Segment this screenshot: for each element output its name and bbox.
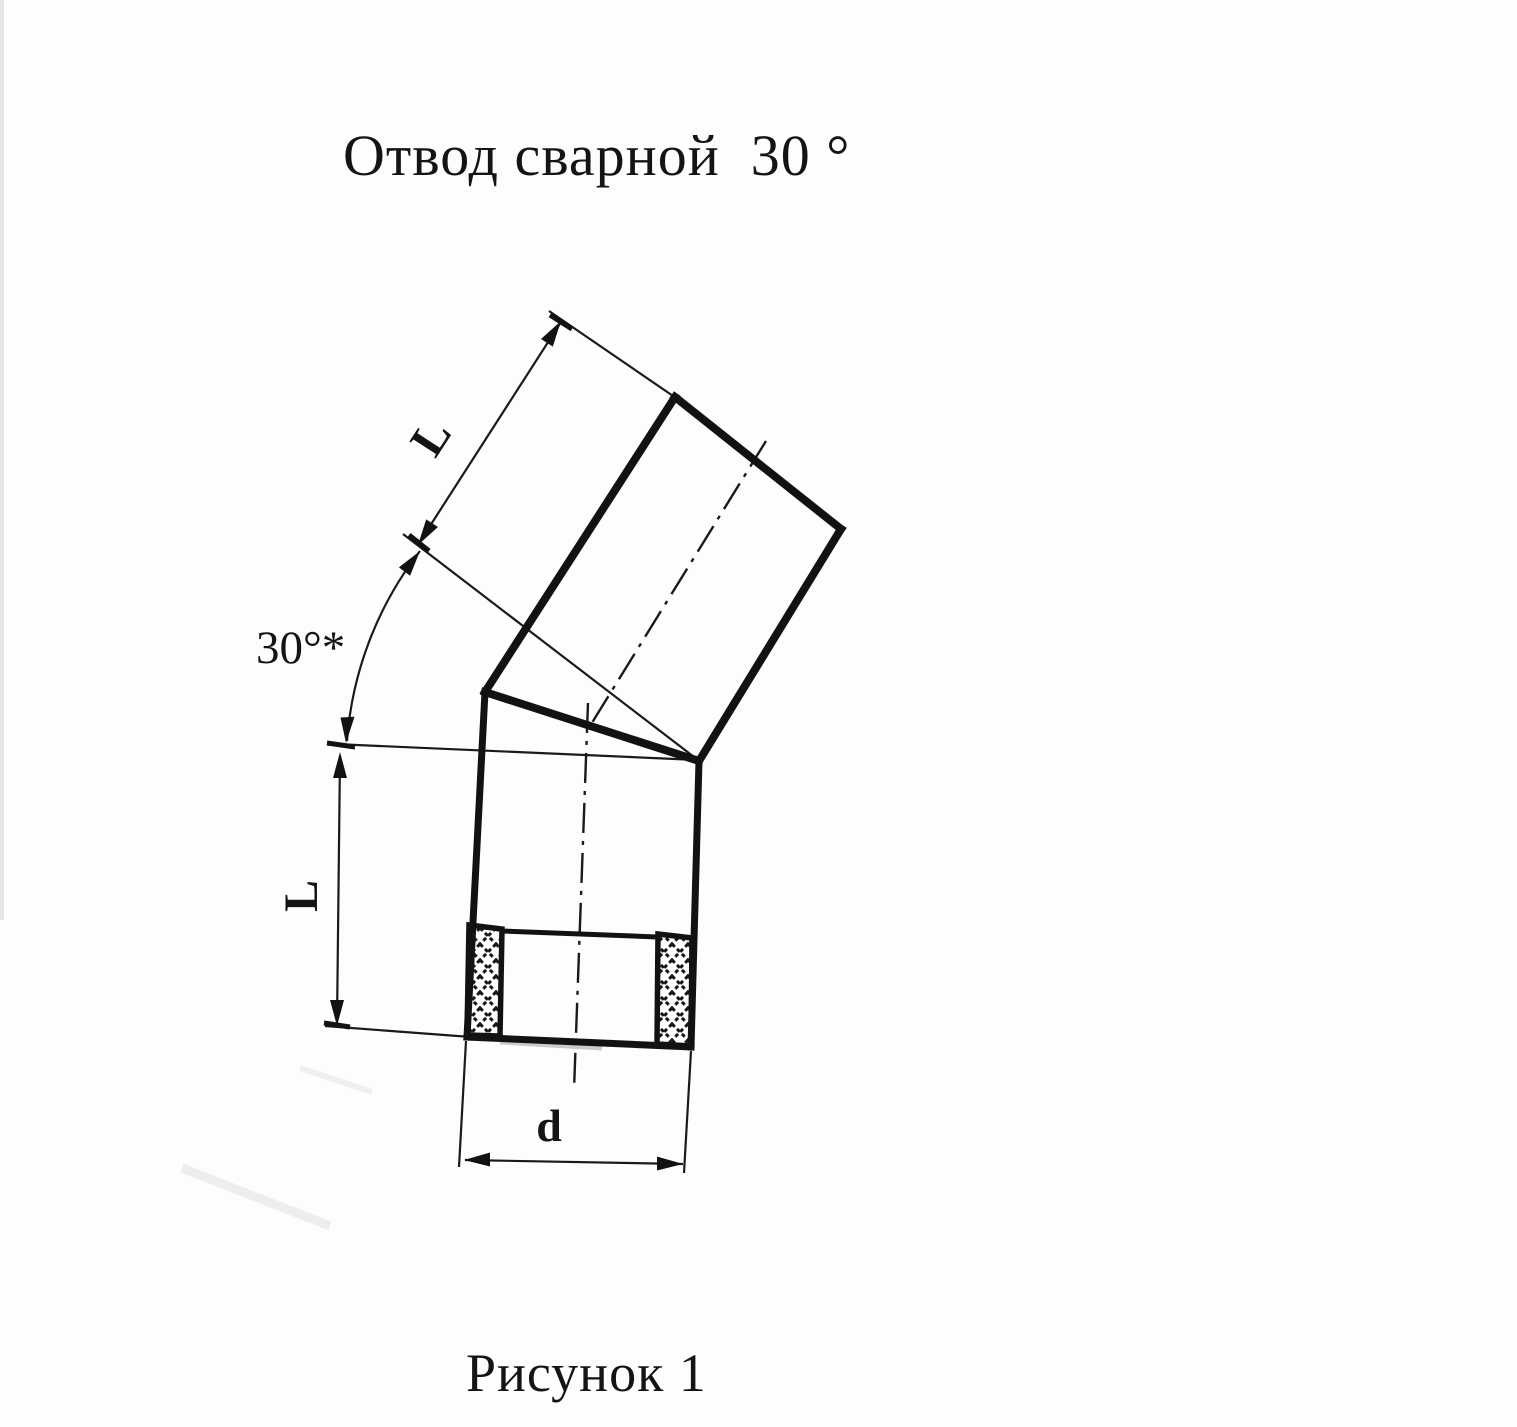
wall-hatch-left: [467, 925, 502, 1036]
arrow-arc-top: [399, 551, 420, 576]
wall-hatch-right: [657, 934, 692, 1046]
arrow-upper-L-top: [541, 321, 561, 347]
upper-segment-top-edge: [675, 397, 841, 529]
tick-upper-L-top: [550, 315, 572, 329]
centerline-lower-segment: [574, 703, 588, 1090]
extension-line-d-left: [459, 1041, 466, 1167]
figure-caption: Рисунок 1: [466, 1342, 707, 1404]
dimension-ticks: [324, 315, 572, 1027]
angle-arc: [347, 551, 420, 741]
angle-side-diagonal: [403, 534, 698, 760]
dimension-line-d: [465, 1160, 683, 1164]
label-angle: 30°*: [256, 622, 345, 674]
scanned-drawing-page: Отвод сварной 30 °: [0, 0, 1517, 1427]
elbow-technical-drawing: L 30°* L d: [0, 0, 1517, 1427]
weld-joint-line: [485, 692, 699, 761]
dimension-line-lower-L: [337, 756, 340, 1023]
arrow-lower-L-top: [333, 752, 347, 778]
tick-angle-junction: [327, 743, 355, 747]
label-lower-length: L: [275, 880, 328, 912]
label-upper-length: L: [400, 410, 462, 466]
arrow-upper-L-bottom: [418, 519, 438, 545]
upper-segment-right-edge: [699, 529, 841, 761]
pipe-outline: [467, 397, 841, 1047]
label-diameter: d: [536, 1100, 562, 1151]
section-cut-line: [502, 931, 658, 937]
arrow-d-left: [464, 1153, 490, 1167]
arrow-d-right: [657, 1157, 683, 1171]
upper-segment-left-edge: [485, 397, 675, 692]
extension-line-d-right: [684, 1051, 691, 1173]
